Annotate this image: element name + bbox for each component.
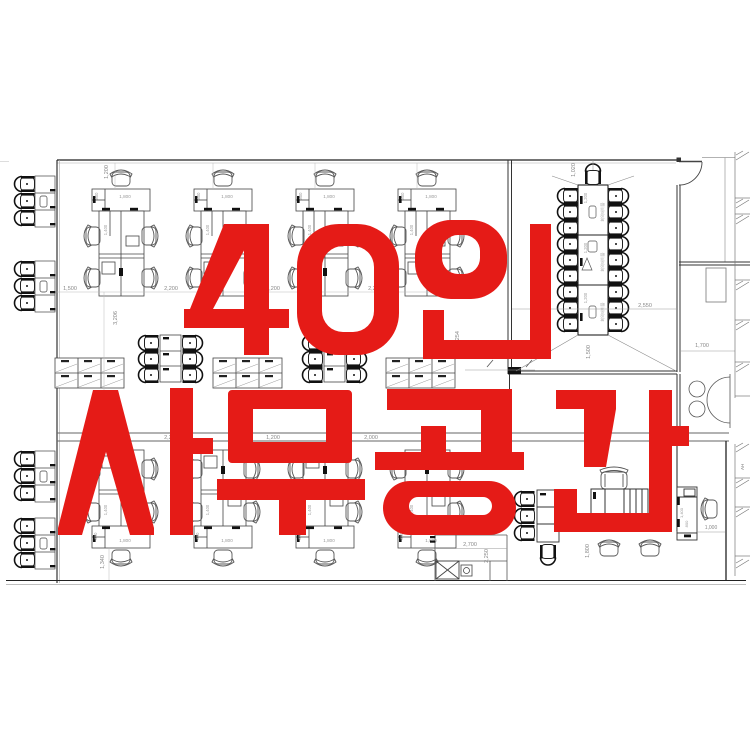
svg-text:1,340: 1,340 bbox=[100, 555, 106, 569]
svg-text:회의테이블: 회의테이블 bbox=[599, 252, 606, 271]
svg-text:1,400: 1,400 bbox=[679, 507, 684, 518]
svg-text:3,206: 3,206 bbox=[113, 311, 119, 325]
svg-text:1,000: 1,000 bbox=[705, 525, 718, 531]
svg-text:1,200: 1,200 bbox=[583, 292, 588, 303]
svg-text:1,020: 1,020 bbox=[571, 163, 577, 177]
svg-text:1,700: 1,700 bbox=[695, 343, 709, 349]
svg-text:2,550: 2,550 bbox=[638, 303, 652, 309]
svg-text:1,200: 1,200 bbox=[104, 165, 110, 179]
svg-text:회의테이블: 회의테이블 bbox=[599, 302, 606, 321]
svg-text:2,250: 2,250 bbox=[484, 549, 490, 563]
svg-text:1,200: 1,200 bbox=[583, 192, 588, 203]
svg-text:1,500: 1,500 bbox=[63, 286, 77, 292]
svg-text:1,800: 1,800 bbox=[585, 544, 591, 558]
svg-text:회의테이블: 회의테이블 bbox=[599, 202, 606, 221]
svg-text:2,000: 2,000 bbox=[364, 435, 378, 441]
svg-text:2,700: 2,700 bbox=[463, 542, 477, 548]
svg-text:2,200: 2,200 bbox=[164, 286, 178, 292]
svg-text:AH: AH bbox=[740, 464, 745, 470]
svg-text:800: 800 bbox=[684, 520, 689, 527]
svg-text:1,200: 1,200 bbox=[583, 242, 588, 253]
svg-text:1,200: 1,200 bbox=[266, 435, 280, 441]
svg-text:1,500: 1,500 bbox=[586, 345, 592, 359]
